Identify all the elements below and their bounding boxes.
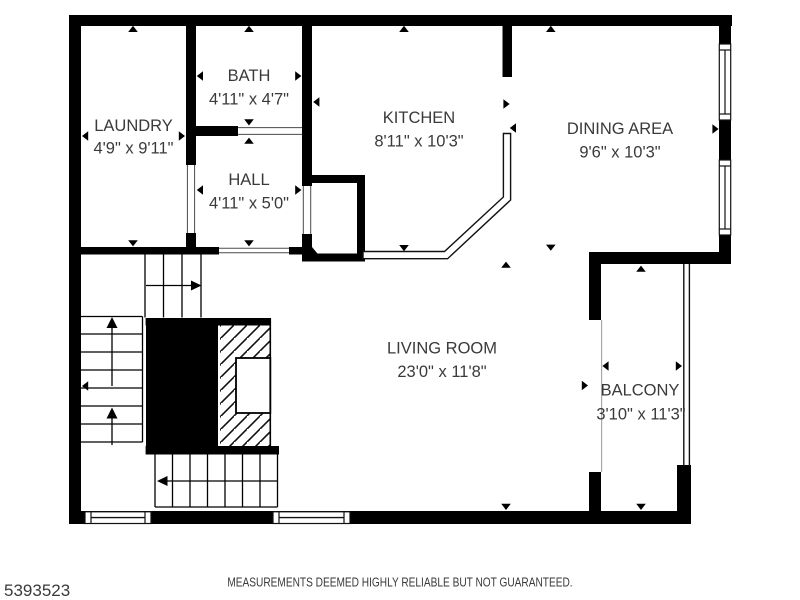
svg-text:5393523: 5393523 [4, 581, 70, 600]
svg-text:HALL: HALL [228, 171, 269, 189]
svg-text:DINING AREA: DINING AREA [567, 120, 673, 138]
svg-text:4'11" x 4'7": 4'11" x 4'7" [209, 91, 289, 109]
svg-text:LIVING ROOM: LIVING ROOM [387, 340, 497, 358]
svg-text:LAUNDRY: LAUNDRY [94, 117, 173, 135]
svg-text:4'9" x 9'11": 4'9" x 9'11" [93, 140, 173, 158]
svg-text:MEASUREMENTS DEEMED HIGHLY REL: MEASUREMENTS DEEMED HIGHLY RELIABLE BUT … [227, 575, 572, 589]
svg-text:BATH: BATH [228, 67, 271, 85]
svg-text:4'11" x 5'0": 4'11" x 5'0" [209, 195, 289, 213]
svg-text:BALCONY: BALCONY [601, 382, 680, 400]
svg-text:3'10" x 11'3": 3'10" x 11'3" [596, 406, 685, 424]
svg-text:8'11" x 10'3": 8'11" x 10'3" [374, 133, 463, 151]
svg-text:9'6" x 10'3": 9'6" x 10'3" [579, 144, 660, 162]
svg-text:KITCHEN: KITCHEN [383, 109, 455, 127]
svg-text:23'0" x 11'8": 23'0" x 11'8" [397, 363, 486, 381]
